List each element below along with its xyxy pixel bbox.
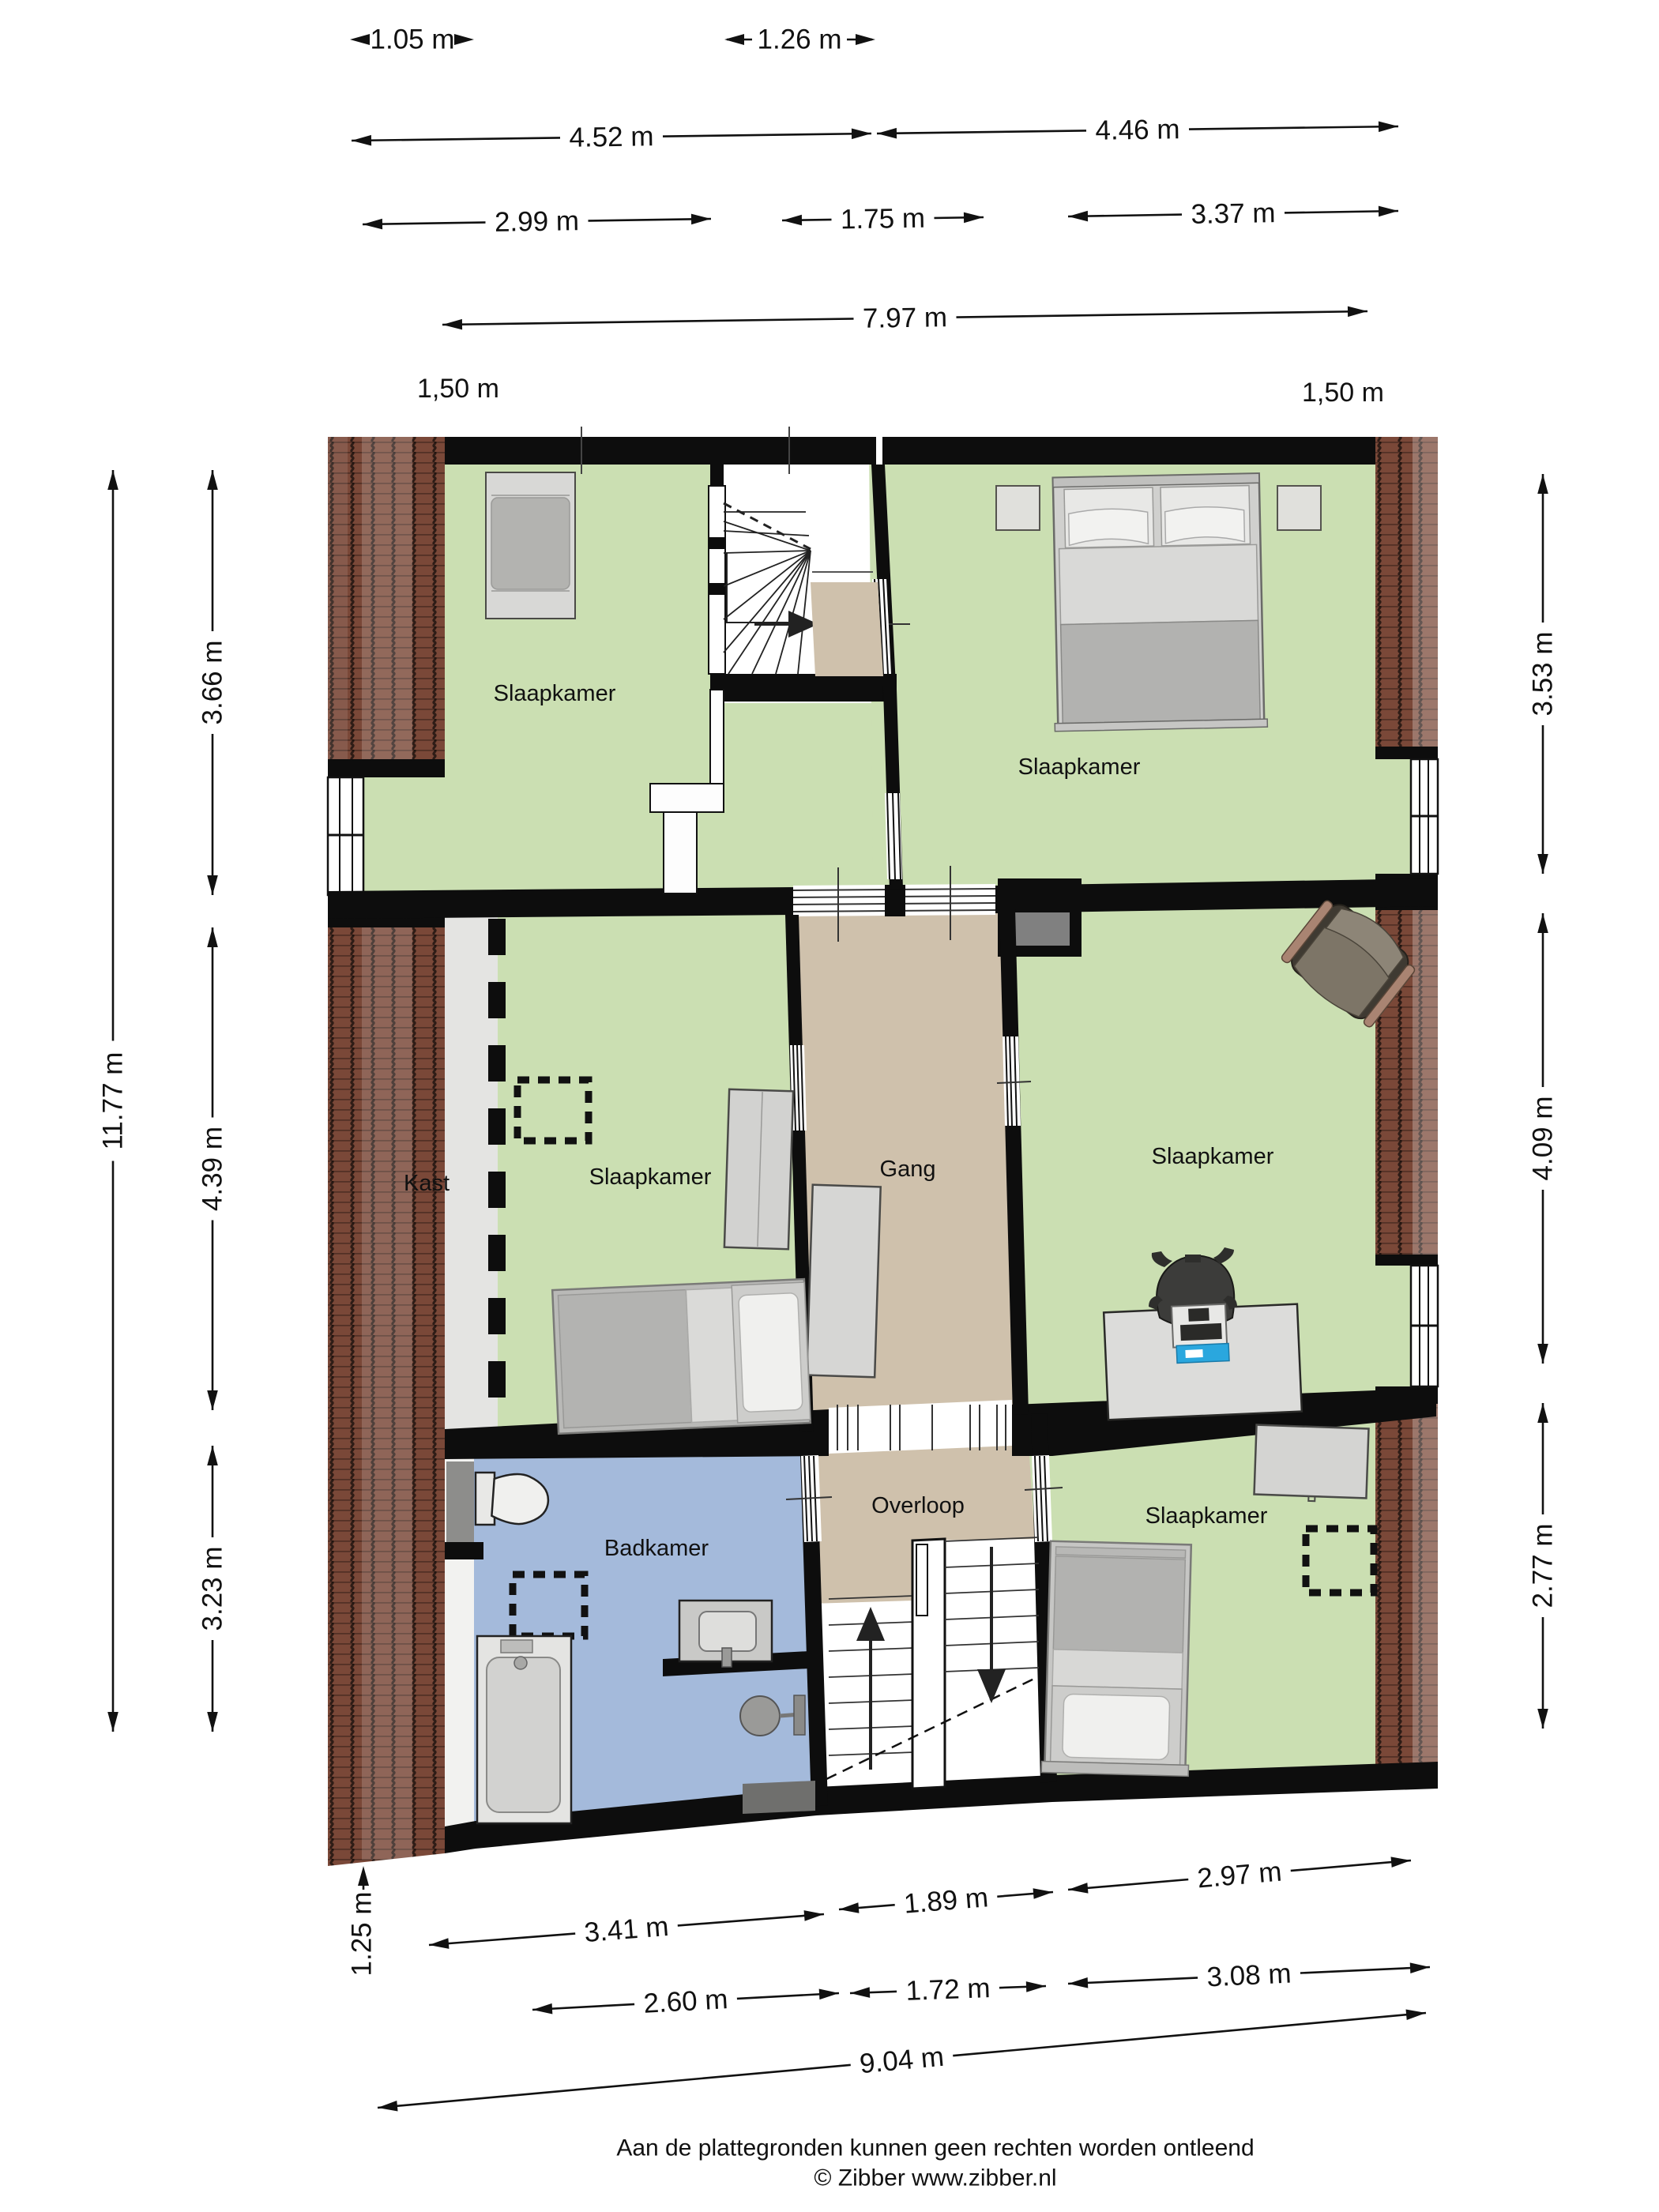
svg-text:Slaapkamer: Slaapkamer [1145,1503,1268,1529]
svg-text:3.08 m: 3.08 m [1206,1958,1292,1993]
svg-text:Slaapkamer: Slaapkamer [589,1164,712,1190]
svg-text:7.97 m: 7.97 m [863,302,948,334]
svg-text:2.99 m: 2.99 m [495,205,580,238]
svg-text:3.66 m: 3.66 m [197,641,228,725]
svg-text:1.72 m: 1.72 m [905,1973,991,2007]
svg-text:Slaapkamer: Slaapkamer [494,681,616,706]
svg-text:1.25 m: 1.25 m [347,1892,378,1977]
svg-text:Badkamer: Badkamer [604,1536,709,1561]
svg-text:4.52 m: 4.52 m [569,121,654,152]
svg-text:Gang: Gang [880,1157,936,1182]
svg-text:4.09 m: 4.09 m [1528,1097,1559,1181]
svg-text:2.77 m: 2.77 m [1528,1524,1559,1608]
svg-text:2.60 m: 2.60 m [643,1984,729,2019]
svg-text:1,50 m: 1,50 m [1302,378,1384,408]
svg-text:© Zibber www.zibber.nl: © Zibber www.zibber.nl [814,2165,1056,2191]
svg-text:Overloop: Overloop [871,1493,965,1518]
svg-text:1,50 m: 1,50 m [417,374,499,404]
svg-text:3.37 m: 3.37 m [1191,197,1276,230]
svg-text:3.53 m: 3.53 m [1528,632,1559,717]
svg-text:4.39 m: 4.39 m [197,1127,228,1211]
svg-text:1.75 m: 1.75 m [841,203,926,235]
svg-text:Slaapkamer: Slaapkamer [1018,754,1141,780]
svg-text:3.41 m: 3.41 m [583,1911,670,1948]
svg-text:Slaapkamer: Slaapkamer [1152,1144,1274,1169]
svg-text:Aan de plattegronden kunnen ge: Aan de plattegronden kunnen geen rechten… [616,2135,1254,2161]
svg-text:1.05 m: 1.05 m [371,24,455,55]
svg-text:1.26 m: 1.26 m [758,24,842,55]
svg-text:11.77 m: 11.77 m [98,1052,129,1150]
svg-text:Kast: Kast [404,1171,450,1196]
svg-text:4.46 m: 4.46 m [1095,114,1180,145]
svg-text:3.23 m: 3.23 m [197,1547,228,1631]
